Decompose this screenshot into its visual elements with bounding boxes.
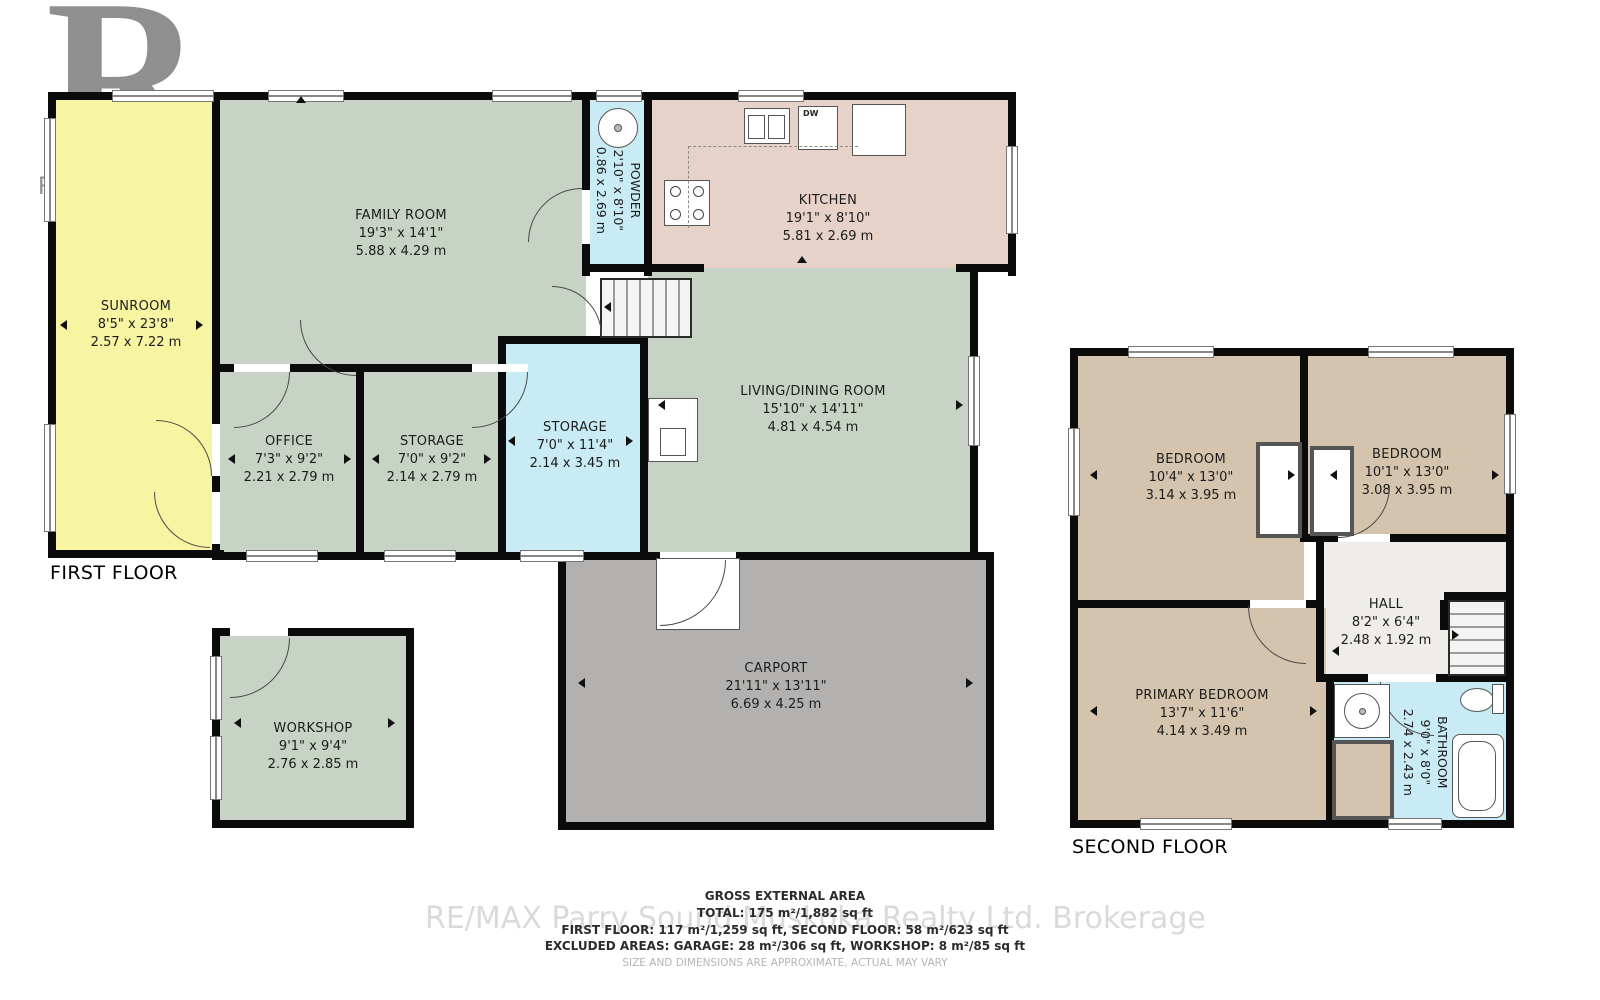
room-name: CARPORT (725, 660, 826, 678)
door-gap (212, 424, 220, 476)
window (210, 736, 222, 800)
stairs-direction-arrow (1452, 630, 1459, 640)
room-dim-imperial: 2'10" x 8'10" (610, 146, 627, 233)
area-summary: GROSS EXTERNAL AREA TOTAL: 175 m²/1,882 … (420, 888, 1150, 971)
window (112, 90, 214, 102)
dimension-arrow (508, 436, 515, 446)
room-dim-imperial: 13'7" x 11'6" (1135, 705, 1268, 723)
wall (644, 92, 652, 276)
room-name: PRIMARY BEDROOM (1135, 687, 1268, 705)
window (492, 90, 572, 102)
room-carport: CARPORT 21'11" x 13'11" 6.69 x 4.25 m (566, 552, 986, 822)
room-name: SUNROOM (91, 298, 182, 316)
room-name: OFFICE (244, 433, 335, 451)
wall (1070, 348, 1078, 828)
room-dim-metric: 5.81 x 2.69 m (783, 228, 874, 246)
wall (1316, 674, 1368, 682)
wall (558, 552, 566, 830)
room-dim-imperial: 7'3" x 9'2" (244, 451, 335, 469)
room-hall: HALL 8'2" x 6'4" 2.48 x 1.92 m (1324, 542, 1448, 674)
room-name: BATHROOM (1433, 708, 1450, 795)
dimension-arrow (388, 718, 395, 728)
room-dim-metric: 4.14 x 3.49 m (1135, 723, 1268, 741)
dishwasher-icon: DW (798, 106, 838, 150)
summary-heading: GROSS EXTERNAL AREA (420, 888, 1150, 905)
wall (48, 550, 224, 558)
toilet-icon (1460, 688, 1494, 712)
window (968, 356, 980, 446)
room-dim-imperial: 19'3" x 14'1" (355, 225, 447, 243)
dimension-arrow (1492, 470, 1499, 480)
dimension-arrow (484, 454, 491, 464)
window (1068, 428, 1080, 516)
door-gap (472, 364, 528, 372)
room-dim-imperial: 15'10" x 14'11" (740, 401, 885, 419)
door-gap (230, 628, 288, 636)
room-dim-metric: 3.14 x 3.95 m (1146, 487, 1237, 505)
wall (986, 552, 994, 830)
dimension-arrow (196, 320, 203, 330)
summary-excluded: EXCLUDED AREAS: GARAGE: 28 m²/306 sq ft,… (420, 938, 1150, 955)
kitchen-sink-icon (744, 108, 790, 144)
wall (1444, 592, 1514, 600)
room-dim-metric: 2.57 x 7.22 m (91, 334, 182, 352)
room-name: STORAGE (387, 433, 478, 451)
room-dim-metric: 2.21 x 2.79 m (244, 469, 335, 487)
room-name: WORKSHOP (268, 720, 359, 738)
dimension-arrow (60, 320, 67, 330)
door-gap (234, 364, 290, 372)
powder-sink-icon (598, 108, 638, 148)
closet-bedroom-left (1256, 442, 1302, 538)
wall (582, 92, 590, 276)
window (44, 118, 56, 222)
room-dim-metric: 4.81 x 4.54 m (740, 419, 885, 437)
dimension-arrow (234, 718, 241, 728)
wall (212, 552, 986, 560)
room-dim-metric: 6.69 x 4.25 m (725, 696, 826, 714)
room-dim-metric: 2.14 x 3.45 m (530, 455, 621, 473)
wall (212, 92, 220, 560)
room-dim-imperial: 10'4" x 13'0" (1146, 469, 1237, 487)
room-dim-metric: 2.76 x 2.85 m (268, 756, 359, 774)
dimension-arrow (1332, 646, 1339, 656)
counter-outline (688, 146, 689, 228)
wall (406, 628, 414, 828)
second-floor-title: SECOND FLOOR (1072, 836, 1228, 858)
room-name: STORAGE (530, 419, 621, 437)
dimension-arrow (626, 436, 633, 446)
dimension-arrow (578, 678, 585, 688)
door-arc (552, 286, 602, 336)
dishwasher-label: DW (803, 109, 818, 118)
room-dim-metric: 2.14 x 2.79 m (387, 469, 478, 487)
room-name: FAMILY ROOM (355, 207, 447, 225)
dimension-arrow (966, 678, 973, 688)
dimension-arrow (956, 400, 963, 410)
dimension-arrow (1090, 470, 1097, 480)
room-dim-imperial: 9'1" x 9'4" (268, 738, 359, 756)
room-dim-metric: 2.48 x 1.92 m (1341, 632, 1432, 650)
closet-shelf (660, 428, 686, 456)
room-dim-imperial: 10'1" x 13'0" (1362, 464, 1453, 482)
wall (356, 364, 364, 560)
wall (1440, 600, 1448, 630)
stove-icon (664, 180, 710, 226)
window (246, 550, 318, 562)
dimension-arrow (372, 454, 379, 464)
door-gap (582, 190, 590, 244)
stairs-direction-arrow (604, 302, 611, 312)
room-sunroom: SUNROOM 8'5" x 23'8" 2.57 x 7.22 m (56, 100, 216, 550)
fridge-icon (852, 104, 906, 156)
room-name: POWDER (626, 146, 643, 233)
window (44, 424, 56, 532)
window (1388, 818, 1442, 830)
room-dim-imperial: 19'1" x 8'10" (783, 210, 874, 228)
window (268, 90, 344, 102)
room-dim-imperial: 7'0" x 11'4" (530, 437, 621, 455)
room-dim-metric: 0.86 x 2.69 m (593, 146, 610, 233)
wall (212, 820, 414, 828)
toilet-tank-icon (1492, 684, 1504, 714)
window (1128, 346, 1214, 358)
dimension-arrow (658, 400, 665, 410)
window (520, 550, 584, 562)
wall (956, 264, 1016, 272)
dimension-arrow (1090, 706, 1097, 716)
wall (1070, 820, 1514, 828)
closet-primary (1332, 740, 1394, 820)
first-floor-title: FIRST FLOOR (50, 562, 178, 584)
dimension-arrow (1310, 706, 1317, 716)
window (1368, 346, 1454, 358)
room-name: HALL (1341, 596, 1432, 614)
dimension-arrow (296, 96, 306, 103)
window (596, 90, 642, 102)
dimension-arrow (1288, 470, 1295, 480)
room-name: BEDROOM (1362, 446, 1453, 464)
window (1504, 414, 1516, 494)
wall (640, 338, 648, 560)
window (1140, 818, 1232, 830)
room-dim-imperial: 8'2" x 6'4" (1341, 614, 1432, 632)
dimension-arrow (344, 454, 351, 464)
room-name: KITCHEN (783, 192, 874, 210)
dimension-arrow (228, 454, 235, 464)
summary-total: TOTAL: 175 m²/1,882 sq ft (420, 905, 1150, 922)
wall (558, 822, 994, 830)
window (210, 656, 222, 720)
summary-disclaimer: SIZE AND DIMENSIONS ARE APPROXIMATE, ACT… (420, 956, 1150, 971)
window (1006, 146, 1018, 234)
counter-outline (688, 146, 858, 147)
door-gap (212, 492, 220, 544)
bathtub-icon (1452, 734, 1504, 818)
floor-plan-canvas: R REALTOR® RE/MAX Parry Sound Muskoka Re… (0, 0, 1600, 1000)
stairs-first-floor (600, 278, 692, 338)
dimension-arrow (797, 256, 807, 263)
room-name: LIVING/DINING ROOM (740, 383, 885, 401)
room-name: BEDROOM (1146, 451, 1237, 469)
bathroom-sink-icon (1334, 684, 1390, 738)
window (738, 90, 804, 102)
window (384, 550, 456, 562)
room-dim-metric: 5.88 x 4.29 m (355, 243, 447, 261)
room-dim-imperial: 7'0" x 9'2" (387, 451, 478, 469)
room-dim-imperial: 8'5" x 23'8" (91, 316, 182, 334)
wall (582, 264, 704, 272)
dimension-arrow (1330, 470, 1337, 480)
summary-floors: FIRST FLOOR: 117 m²/1,259 sq ft, SECOND … (420, 922, 1150, 939)
room-dim-imperial: 21'11" x 13'11" (725, 678, 826, 696)
wall (1316, 534, 1324, 682)
